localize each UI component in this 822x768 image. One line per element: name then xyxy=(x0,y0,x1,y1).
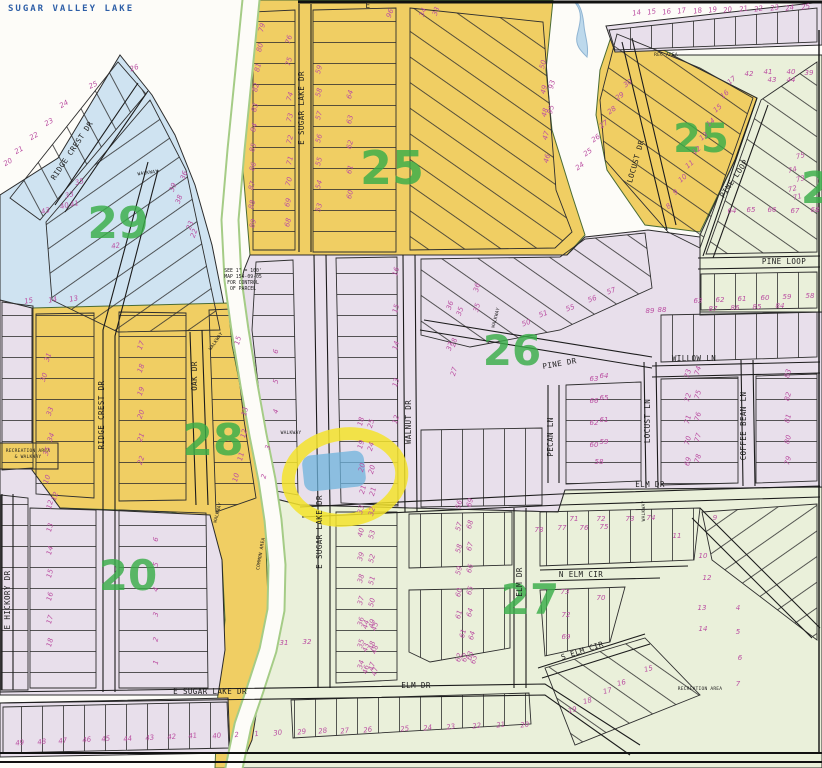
lot-number: 31 xyxy=(280,639,289,647)
lot-number: 16 xyxy=(662,7,673,17)
lot-number: 9 xyxy=(713,514,718,522)
lot-number: 21 xyxy=(739,4,749,13)
section-number: 26 xyxy=(483,326,541,375)
lot-number: 22 xyxy=(472,721,482,730)
lot-number: 58 xyxy=(595,458,604,466)
street-label: E HICKORY DR xyxy=(3,570,12,629)
lot-number: 30 xyxy=(273,728,283,737)
lot-number: 62 xyxy=(716,296,725,304)
lot-number: 23 xyxy=(446,722,456,731)
lot-number: 21 xyxy=(496,720,506,729)
lot-number: 46 xyxy=(82,735,92,744)
lot-number: 85 xyxy=(753,303,762,311)
street-label: E SUGAR LAKE DR xyxy=(297,71,306,145)
area-label: RECREATION AREA xyxy=(678,686,723,692)
street-label: E SUGAR LAKE DR xyxy=(173,687,247,696)
area-label: WALKWAY xyxy=(281,430,302,436)
street-label: E xyxy=(366,1,371,10)
lot-number: 65 xyxy=(600,394,609,402)
lot-number: 73 xyxy=(561,588,570,596)
lot-number: 21 xyxy=(13,145,25,156)
lot-number: 20 xyxy=(520,720,530,729)
note-line: MAP 154-09-05 xyxy=(224,274,262,280)
lot-number: 18 xyxy=(693,6,704,16)
street-label: OAK DR xyxy=(190,361,199,391)
lot-number: 64 xyxy=(600,372,609,380)
lot-number: 42 xyxy=(167,732,177,741)
lot-number: 24 xyxy=(574,161,586,173)
lot-number: 41 xyxy=(764,68,773,76)
note-line: SEE 1" = 100' xyxy=(224,268,262,274)
lot-number: 64 xyxy=(728,207,737,215)
street-label: PECAN LN xyxy=(546,417,555,456)
lot-number: 22 xyxy=(754,4,765,14)
lot-number: 84 xyxy=(776,302,785,310)
street-label: LOCUST LN xyxy=(643,399,652,443)
lot-number: 77 xyxy=(558,524,567,532)
lot-number: 66 xyxy=(768,206,777,214)
lot-number: 6 xyxy=(738,654,743,662)
section-number: 25 xyxy=(360,141,424,195)
lot-number: 20 xyxy=(2,156,14,168)
lot-number: 12 xyxy=(703,574,712,582)
lot-number: 87 xyxy=(709,305,718,313)
lot-number: 26 xyxy=(129,63,141,74)
note-line: FOR CONTROL xyxy=(227,280,259,286)
lot-number: 59 xyxy=(783,293,792,301)
lot-number: 23 xyxy=(770,3,780,12)
lot-number: 45 xyxy=(101,734,111,743)
section-number: 28 xyxy=(182,415,243,466)
lot-number: 24 xyxy=(423,723,433,732)
lot-number: 39 xyxy=(805,69,814,77)
lot-number: 13 xyxy=(698,604,707,612)
lot-number: 28 xyxy=(318,726,328,735)
lot-number: 49 xyxy=(15,738,25,747)
lot-number: 89 xyxy=(646,307,655,315)
street-label: E SUGAR LAKE DR xyxy=(315,495,324,569)
lot-number: 67 xyxy=(791,207,800,215)
plat-map: SUGAR VALLEY LAKE xyxy=(0,0,822,768)
lot-number: 95 xyxy=(546,104,556,115)
street-label: ELM DR xyxy=(515,567,524,597)
lot-number: 93 xyxy=(547,79,557,90)
lot-number: 68 xyxy=(811,206,820,214)
lot-number: 61 xyxy=(600,416,609,424)
lot-number: 13 xyxy=(69,294,79,303)
pond-water xyxy=(576,4,588,57)
lot-number: 15 xyxy=(647,7,658,17)
map-title: SUGAR VALLEY LAKE xyxy=(8,4,134,14)
section-number: 27 xyxy=(501,575,559,624)
lot-number: 4 xyxy=(736,604,740,612)
lot-number: 11 xyxy=(673,532,682,540)
lot-number: 63 xyxy=(590,375,599,383)
lot-number: 88 xyxy=(658,306,667,314)
lot-number: 22 xyxy=(28,130,40,142)
lot-number: 75 xyxy=(600,523,609,531)
lot-number: 20 xyxy=(723,5,734,15)
lot-number: 60 xyxy=(590,441,599,449)
lot-number: 60 xyxy=(761,294,770,302)
lot-number: 44 xyxy=(123,734,133,743)
lot-number: 71 xyxy=(570,515,579,523)
lot-number: 62 xyxy=(590,419,599,427)
lot-number: 63 xyxy=(694,297,703,305)
lot-number: 76 xyxy=(580,524,589,532)
lot-number: 25 xyxy=(400,724,410,733)
note-line: OF PARCEL xyxy=(230,286,256,292)
street-label: ELM DR xyxy=(635,480,665,489)
lot-number: 26 xyxy=(363,725,373,734)
street-label: RIDGE CREST DR xyxy=(97,381,106,450)
lot-number: 42 xyxy=(745,70,754,78)
lot-number: 72 xyxy=(562,611,571,619)
lot-number: 24 xyxy=(785,3,795,12)
lot-number: 78 xyxy=(535,526,544,534)
lot-number: 14 xyxy=(48,295,58,304)
street-label: COFFEE BEAN LN xyxy=(739,392,748,461)
lot-number: 66 xyxy=(590,397,599,405)
lot-number: 74 xyxy=(647,514,656,522)
lot-number: 7 xyxy=(736,680,741,688)
lot-number: 14 xyxy=(699,625,708,633)
lot-number: 40 xyxy=(212,731,222,740)
lot-number: 19 xyxy=(708,5,719,15)
street-label: WALNUT DR xyxy=(404,400,413,444)
lot-number: 73 xyxy=(626,515,635,523)
lot-number: 32 xyxy=(303,638,312,646)
area-label: & WALKWAY xyxy=(15,454,42,460)
lot-number: 47 xyxy=(58,736,68,745)
lot-number: 41 xyxy=(188,731,198,740)
lot-number: 69 xyxy=(562,633,571,641)
lot-number: 61 xyxy=(738,295,747,303)
lot-number: 70 xyxy=(597,594,606,602)
lot-number: 24 xyxy=(58,99,70,110)
lot-number: 48 xyxy=(37,737,47,746)
street-label: N ELM CIR xyxy=(559,570,603,579)
lot-number: 5 xyxy=(736,628,741,636)
lot-number: 86 xyxy=(731,304,740,312)
lot-number: 29 xyxy=(297,727,307,736)
area-label: REC AREA xyxy=(654,52,678,58)
section-number: 20 xyxy=(99,551,157,600)
lot-number: 17 xyxy=(677,6,688,16)
lot-number: 44 xyxy=(787,76,796,84)
lot-number: 65 xyxy=(747,206,756,214)
lot-number: 25 xyxy=(582,146,594,158)
lot-number: 27 xyxy=(340,726,350,735)
lot-number: 43 xyxy=(145,733,155,742)
street-label: WILLOW LN xyxy=(672,354,716,363)
lot-number: 72 xyxy=(597,515,606,523)
lot-number: 58 xyxy=(806,292,815,300)
lot-number: 43 xyxy=(768,76,777,84)
lot-number: 10 xyxy=(699,552,708,560)
lot-number: 14 xyxy=(632,8,642,17)
lot-number: 59 xyxy=(600,438,609,446)
street-label: ELM DR xyxy=(401,681,431,690)
lot-number: 23 xyxy=(43,117,55,128)
street-label: PINE LOOP xyxy=(762,257,806,266)
lot-number: 40 xyxy=(787,68,796,76)
map-canvas: 292525228262027 RIDGE CREST DRRIDGE CRES… xyxy=(0,0,822,768)
